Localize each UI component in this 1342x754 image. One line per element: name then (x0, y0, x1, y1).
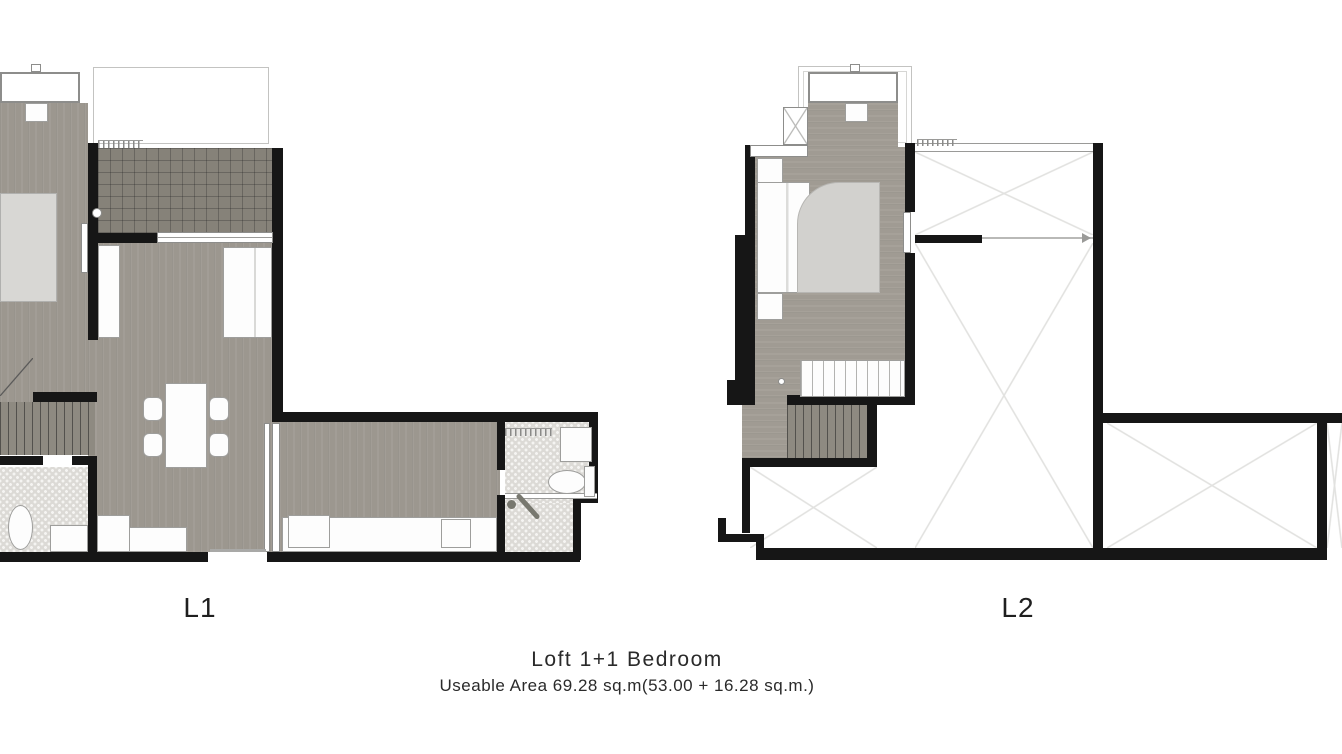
l2-void-under-stair (750, 467, 877, 548)
l2-stair-landing-floor (742, 397, 787, 458)
plan-title: Loft 1+1 Bedroom (427, 648, 827, 672)
l2-wardrobe (800, 360, 905, 397)
l2-wall-stair-bottom (742, 458, 877, 467)
plan-subtitle: Useable Area 69.28 sq.m(53.00 + 16.28 sq… (377, 676, 877, 696)
l2-wall-void-left (742, 467, 750, 533)
l2-window-north-strip (750, 145, 808, 157)
floor-plan-l2 (0, 0, 1342, 754)
l2-wall-east-wing-right (1317, 413, 1327, 560)
l2-wall-bottom (756, 548, 1327, 560)
l2-wall-west-upper (745, 145, 755, 235)
l2-wall-east-lower (905, 253, 915, 397)
l2-void-east-sliver (1327, 423, 1342, 548)
l2-wall-east-upper (905, 143, 915, 212)
l2-nightstand (757, 293, 783, 320)
l2-wall-stair-jut (727, 380, 747, 405)
l2-louver-icon (917, 139, 957, 146)
l2-window-bench (845, 103, 868, 122)
l2-label: L2 (978, 592, 1058, 626)
l2-beam-line (982, 237, 1093, 239)
l2-window-mullion-tick (850, 64, 860, 72)
l2-skylight-window (783, 107, 808, 145)
l2-bed-duvet (797, 182, 880, 293)
l2-void-upper (915, 152, 1093, 235)
floor-plan-sheet: L1 L2 Loft 1+1 Bedroom Useable Area 69.2… (0, 0, 1342, 754)
l1-label: L1 (160, 592, 240, 626)
l2-staircase (787, 405, 867, 458)
l2-wall-east-wing-top (1100, 413, 1342, 423)
l2-nightstand (757, 158, 783, 183)
l2-void-main (915, 243, 1093, 548)
l2-bedroom-door-leaf (903, 212, 911, 253)
l2-railing-beam (915, 235, 982, 243)
l2-wall-void-right (1093, 143, 1103, 560)
l2-wall-stair-right (867, 397, 877, 467)
l2-beam-arrow-icon (1082, 233, 1091, 243)
l2-door-knob-icon (778, 378, 785, 385)
l2-bay-window (808, 72, 898, 103)
l2-void-east (1107, 423, 1317, 548)
